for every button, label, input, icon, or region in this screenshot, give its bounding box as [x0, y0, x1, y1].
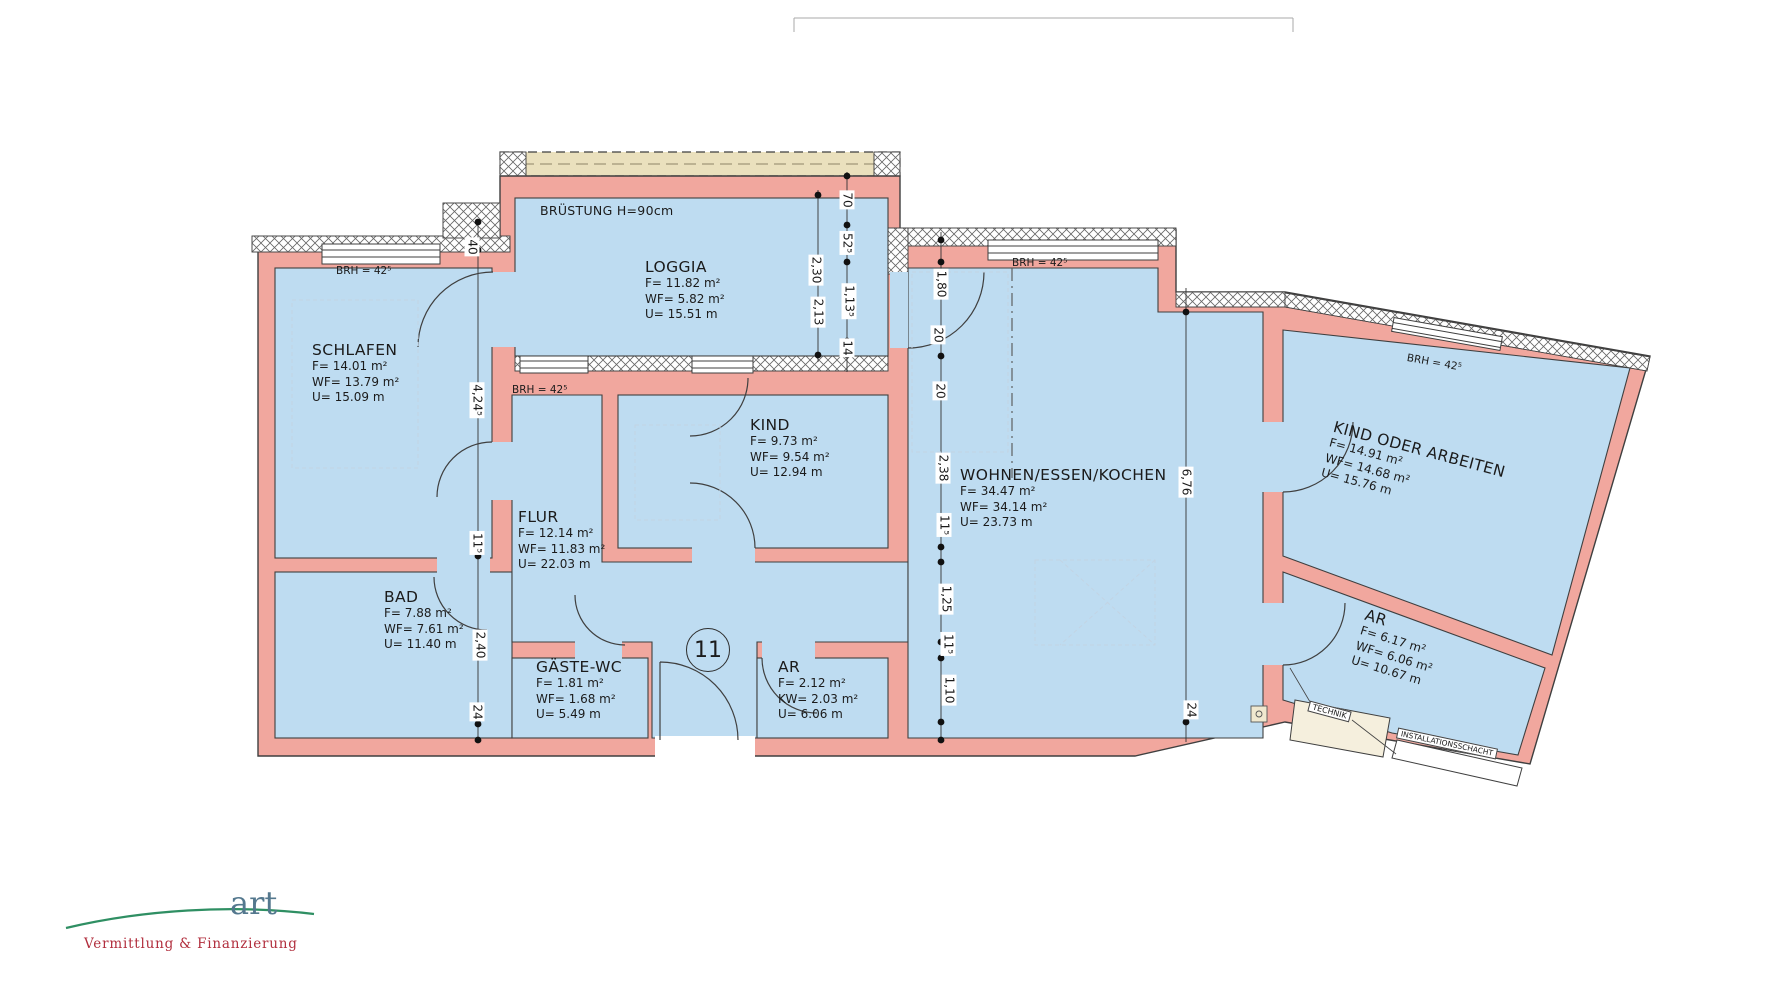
dim-2-30: 2,30: [809, 255, 824, 286]
brh-label-wohnen: BRH = 42⁵: [1012, 257, 1067, 269]
dim-14: 14: [840, 338, 855, 357]
logo-tagline: Vermittlung & Finanzierung: [84, 936, 298, 952]
parapet-note: BRÜSTUNG H=90cm: [540, 203, 673, 218]
dim-1-80: 1,80: [934, 269, 949, 300]
logo-word: art: [230, 884, 277, 922]
dim-11-5-left: 11⁵: [470, 531, 485, 555]
dim-40: 40: [465, 237, 480, 256]
room-name: KIND: [750, 416, 830, 434]
dim-11-5-mid: 11⁵: [937, 513, 952, 537]
logo-swoosh-icon: [62, 898, 332, 938]
room-label-loggia: LOGGIA F= 11.82 m² WF= 5.82 m² U= 15.51 …: [645, 258, 725, 323]
dim-70: 70: [840, 190, 855, 209]
room-label-schlafen: SCHLAFEN F= 14.01 m² WF= 13.79 m² U= 15.…: [312, 341, 399, 406]
dim-6-76: 6,76: [1179, 467, 1194, 498]
unit-number: 11: [694, 638, 722, 663]
electrical-symbol: [1251, 706, 1267, 722]
dim-24-right: 24: [1184, 700, 1199, 719]
floorplan-page: BRÜSTUNG H=90cm SCHLAFEN F= 14.01 m² WF=…: [0, 0, 1778, 1000]
brh-label-flur: BRH = 42⁵: [512, 384, 567, 396]
room-name: WOHNEN/ESSEN/KOCHEN: [960, 466, 1166, 484]
room-label-flur: FLUR F= 12.14 m² WF= 11.83 m² U= 22.03 m: [518, 508, 605, 573]
room-name: SCHLAFEN: [312, 341, 399, 359]
floorplan-drawing: [0, 0, 1778, 1000]
room-label-kind: KIND F= 9.73 m² WF= 9.54 m² U= 12.94 m: [750, 416, 830, 481]
room-name: AR: [778, 658, 858, 676]
room-name: FLUR: [518, 508, 605, 526]
dim-24-left: 24: [470, 702, 485, 721]
dim-2-13: 2,13: [811, 297, 826, 328]
roof-outline: [794, 18, 1293, 32]
dim-1-25: 1,25: [939, 584, 954, 615]
room-schlafen: [275, 268, 492, 558]
room-label-bad: BAD F= 7.88 m² WF= 7.61 m² U= 11.40 m: [384, 588, 464, 653]
room-label-gaeste-wc: GÄSTE-WC F= 1.81 m² WF= 1.68 m² U= 5.49 …: [536, 658, 622, 723]
room-label-ar-klein: AR F= 2.12 m² KW= 2.03 m² U= 6.06 m: [778, 658, 858, 723]
unit-number-badge: 11: [686, 628, 730, 672]
dim-20-b: 20: [933, 381, 948, 400]
room-name: LOGGIA: [645, 258, 725, 276]
room-name: GÄSTE-WC: [536, 658, 622, 676]
dim-2-38: 2,38: [936, 453, 951, 484]
dim-52-5: 52⁵: [840, 231, 855, 255]
broker-logo: art Vermittlung & Finanzierung: [62, 888, 342, 968]
dim-11-5-mid2: 11⁵: [941, 632, 956, 656]
room-name: BAD: [384, 588, 464, 606]
dim-1-10: 1,10: [942, 675, 957, 706]
room-label-wohnen: WOHNEN/ESSEN/KOCHEN F= 34.47 m² WF= 34.1…: [960, 466, 1166, 531]
dim-2-40: 2,40: [473, 630, 488, 661]
loggia-parapet: [500, 152, 900, 176]
dim-20-a: 20: [931, 325, 946, 344]
dim-4-24-5: 4,24⁵: [470, 382, 485, 418]
dim-1-13-5: 1,13⁵: [842, 283, 857, 319]
brh-label-schlafen: BRH = 42⁵: [336, 265, 391, 277]
